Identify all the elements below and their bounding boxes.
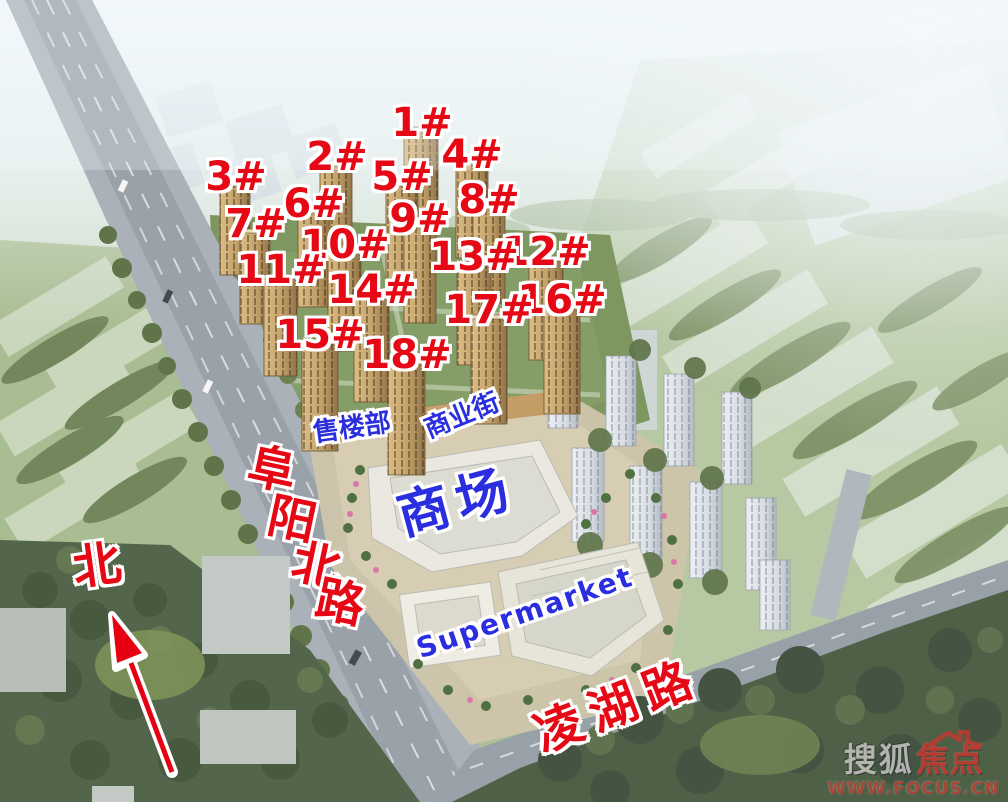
fuyang-road-char-1: 阜 xyxy=(244,442,301,499)
building-label-7: 7# xyxy=(225,204,286,244)
building-label-2: 2# xyxy=(306,137,367,177)
focus-house-icon xyxy=(926,730,998,748)
fuyang-road-char-4: 路 xyxy=(312,575,369,632)
building-label-6: 6# xyxy=(283,184,344,224)
building-label-5: 5# xyxy=(371,157,432,197)
north-label: 北 xyxy=(70,539,124,593)
building-label-4: 4# xyxy=(441,135,502,175)
watermark: 搜狐 焦点 WWW.FOCUS.CN xyxy=(828,743,1000,798)
building-label-13: 13# xyxy=(429,237,518,277)
building-label-17: 17# xyxy=(444,290,533,330)
watermark-url: WWW.FOCUS.CN xyxy=(828,779,1000,798)
building-label-18: 18# xyxy=(362,335,451,375)
aerial-rendering xyxy=(0,0,1008,802)
building-label-9: 9# xyxy=(389,199,450,239)
building-label-3: 3# xyxy=(205,157,266,197)
building-label-11: 11# xyxy=(236,250,325,290)
building-label-14: 14# xyxy=(327,270,416,310)
haze-veil xyxy=(0,0,1008,170)
building-label-15: 15# xyxy=(275,315,364,355)
aerial-siteplan: 1# 2# 3# 4# 5# 6# 7# 8# 9# 10# 11# 12# 1… xyxy=(0,0,1008,802)
building-label-8: 8# xyxy=(458,180,519,220)
watermark-brand-sohu: 搜狐 xyxy=(844,743,914,776)
